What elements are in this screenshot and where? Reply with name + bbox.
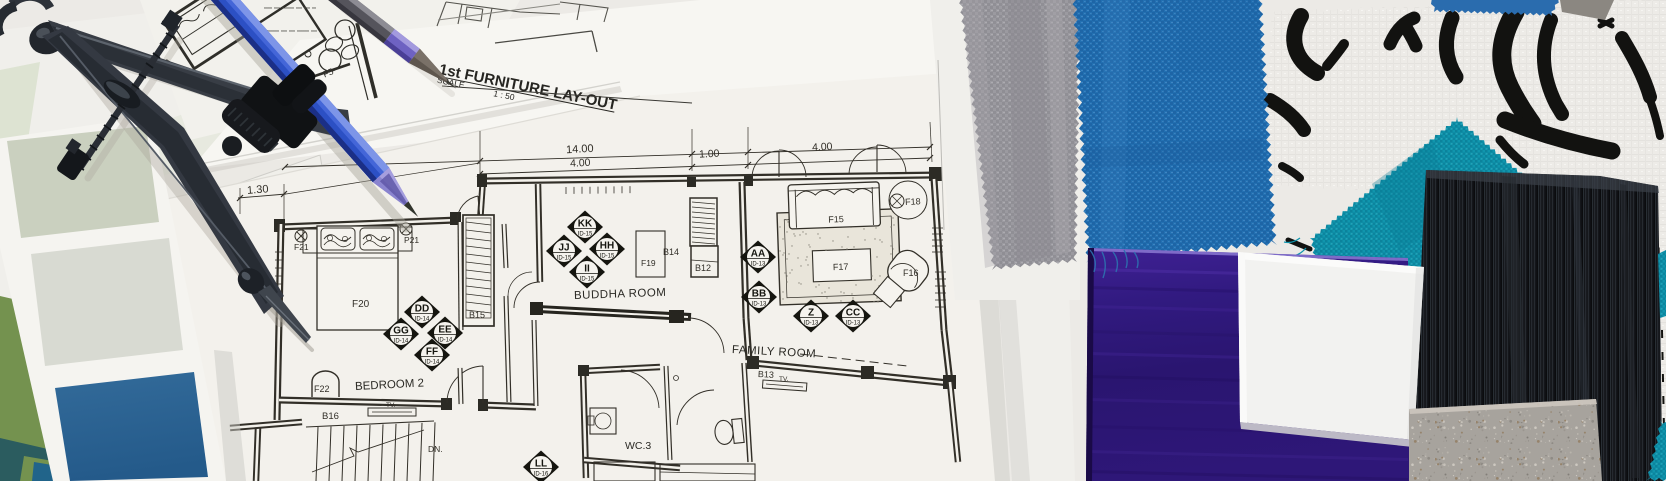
svg-text:WC.3: WC.3: [625, 440, 651, 452]
svg-text:1.00: 1.00: [699, 148, 720, 161]
svg-text:ID-14: ID-14: [438, 338, 453, 344]
svg-text:ID-13: ID-13: [752, 302, 767, 308]
svg-text:ID-16: ID-16: [534, 472, 549, 478]
svg-text:ID-13: ID-13: [751, 262, 766, 268]
svg-text:II: II: [584, 264, 590, 275]
svg-text:B12: B12: [695, 263, 711, 273]
svg-text:BB: BB: [752, 289, 766, 300]
svg-text:TV.: TV.: [386, 402, 396, 409]
svg-text:DN.: DN.: [428, 444, 443, 454]
svg-text:FF: FF: [426, 347, 438, 358]
svg-text:DD: DD: [415, 304, 429, 315]
svg-text:Z: Z: [808, 308, 814, 319]
svg-text:AA: AA: [751, 249, 765, 260]
svg-text:B15: B15: [469, 310, 485, 320]
svg-text:B14: B14: [663, 247, 679, 257]
svg-text:JJ: JJ: [558, 243, 569, 254]
svg-text:B13: B13: [758, 369, 775, 380]
svg-text:ID-15: ID-15: [557, 256, 572, 262]
svg-text:EE: EE: [438, 325, 452, 336]
svg-text:4.00: 4.00: [812, 141, 833, 154]
svg-text:1.30: 1.30: [247, 183, 269, 196]
svg-text:ID-13: ID-13: [804, 321, 819, 327]
svg-text:14.00: 14.00: [566, 143, 594, 156]
svg-text:ID-15: ID-15: [580, 277, 595, 283]
svg-text:F17: F17: [833, 262, 849, 273]
svg-text:ID-13: ID-13: [846, 321, 861, 327]
svg-text:ID-14: ID-14: [415, 317, 430, 323]
svg-text:F15: F15: [828, 214, 844, 225]
svg-text:F21: F21: [294, 242, 309, 252]
svg-text:ID-14: ID-14: [425, 360, 440, 366]
svg-text:F19: F19: [641, 258, 656, 268]
svg-text:CC: CC: [846, 308, 860, 319]
svg-text:4.00: 4.00: [570, 157, 591, 170]
svg-text:F16: F16: [903, 268, 919, 278]
svg-text:LL: LL: [535, 459, 547, 470]
svg-text:ID-14: ID-14: [394, 339, 409, 345]
svg-text:ID-15: ID-15: [600, 254, 615, 260]
svg-text:B16: B16: [322, 411, 339, 422]
svg-text:F18: F18: [905, 196, 921, 207]
svg-text:F22: F22: [314, 384, 330, 394]
svg-text:KK: KK: [578, 219, 593, 230]
svg-text:HH: HH: [600, 241, 614, 252]
svg-text:ID-15: ID-15: [578, 232, 593, 238]
svg-text:GG: GG: [393, 326, 409, 337]
svg-text:F20: F20: [352, 299, 370, 310]
